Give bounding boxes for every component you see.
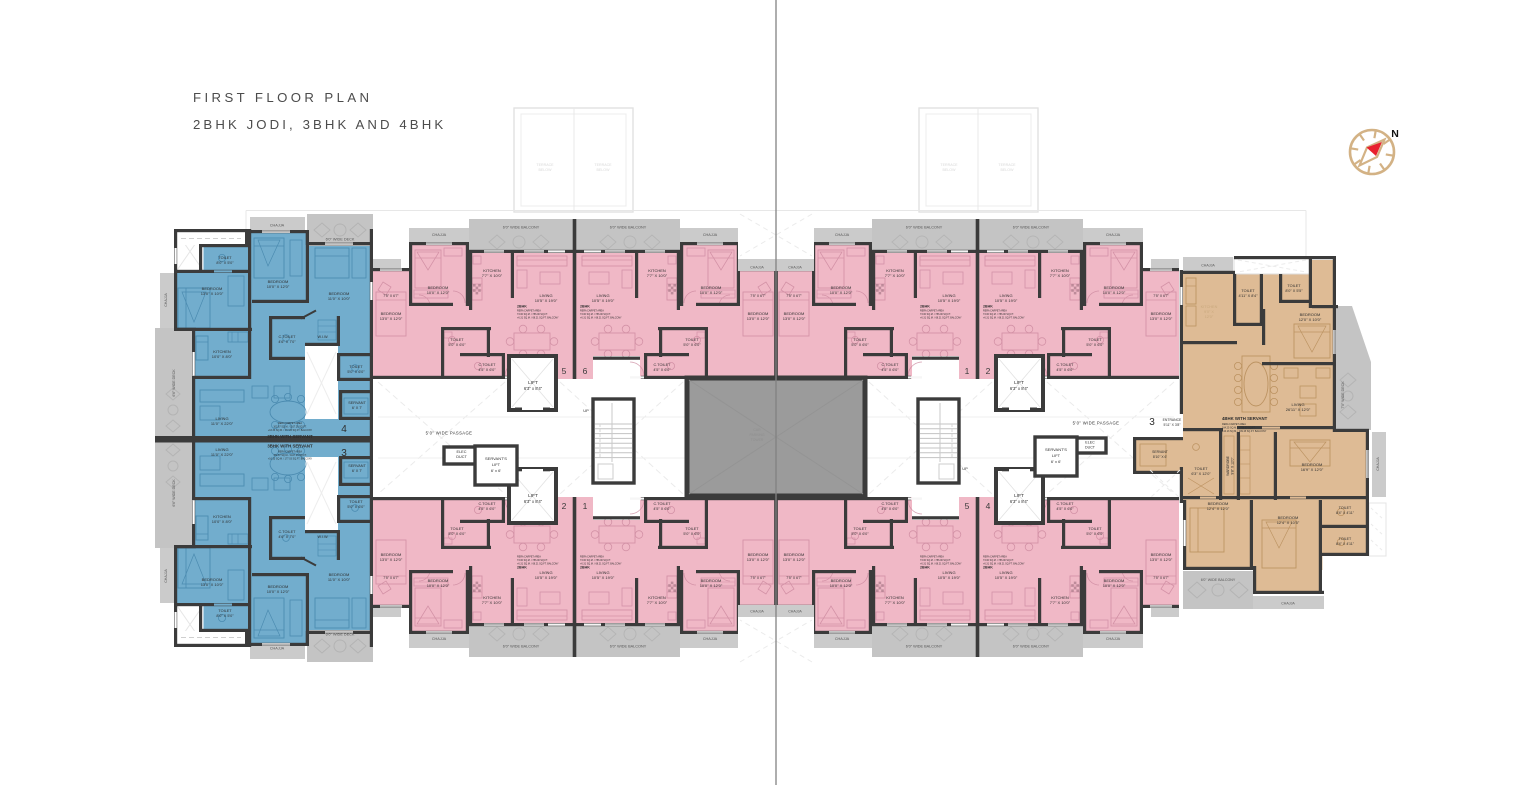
svg-text:6'0" WIDE BALCONY: 6'0" WIDE BALCONY xyxy=(1201,578,1236,582)
svg-text:10'5" X 19'0": 10'5" X 19'0" xyxy=(535,298,558,303)
svg-text:3BHK WITH SERVANT: 3BHK WITH SERVANT xyxy=(267,444,313,449)
svg-text:TERRACE: TERRACE xyxy=(594,163,612,167)
svg-text:C.TOILET: C.TOILET xyxy=(278,335,296,339)
svg-text:4'5" X 6'0": 4'5" X 6'0" xyxy=(881,507,899,511)
svg-text:6'0" WIDE BALCONY: 6'0" WIDE BALCONY xyxy=(906,226,943,230)
svg-text:TOILET: TOILET xyxy=(349,365,363,369)
svg-text:13'0" X 10'0": 13'0" X 10'0" xyxy=(201,291,224,296)
svg-text:10'0" X 12'0": 10'0" X 12'0" xyxy=(267,589,290,594)
svg-text:4BHK WITH SERVANT: 4BHK WITH SERVANT xyxy=(1222,416,1268,421)
svg-text:TOILET: TOILET xyxy=(1194,467,1208,471)
svg-text:TERRACE: TERRACE xyxy=(998,163,1016,167)
svg-text:CHAJJA: CHAJJA xyxy=(835,637,850,641)
svg-text:TOILET: TOILET xyxy=(450,527,464,531)
svg-text:10'5" X 19'0": 10'5" X 19'0" xyxy=(938,298,961,303)
svg-text:13'0" X 12'0": 13'0" X 12'0" xyxy=(783,557,806,562)
svg-text:6'0" WIDE BALCONY: 6'0" WIDE BALCONY xyxy=(610,645,647,649)
svg-text:TOILET: TOILET xyxy=(218,256,232,260)
svg-text:13'0" X 10'0": 13'0" X 10'0" xyxy=(201,582,224,587)
svg-text:8'4" X 4'11": 8'4" X 4'11" xyxy=(1336,542,1355,546)
svg-text:7'5" X 6'7": 7'5" X 6'7" xyxy=(750,294,766,298)
svg-text:+16.33 SQ.M. / 177.03 SQ.FT. B: +16.33 SQ.M. / 177.03 SQ.FT. BALCONY xyxy=(268,457,313,460)
svg-text:6' x 6': 6' x 6' xyxy=(491,468,501,473)
svg-text:2BHK: 2BHK xyxy=(920,566,930,570)
svg-text:FIRST FLOOR PLAN: FIRST FLOOR PLAN xyxy=(193,90,372,105)
svg-text:ELEC: ELEC xyxy=(1085,441,1095,445)
svg-text:1: 1 xyxy=(583,501,588,511)
svg-text:LIFT: LIFT xyxy=(492,462,501,467)
svg-text:6'0" WIDE DECK: 6'0" WIDE DECK xyxy=(326,238,355,242)
svg-text:BELOW: BELOW xyxy=(597,168,611,172)
svg-text:4'5" X 6'0": 4'5" X 6'0" xyxy=(478,368,496,372)
svg-text:6'3" x 8'4": 6'3" x 8'4" xyxy=(1010,499,1029,504)
svg-text:CHAJJA: CHAJJA xyxy=(703,637,718,641)
svg-text:10'0" X 12'0": 10'0" X 12'0" xyxy=(700,583,723,588)
svg-text:13'0" X 12'0": 13'0" X 12'0" xyxy=(380,316,403,321)
svg-text:5: 5 xyxy=(562,366,567,376)
svg-text:TOILET: TOILET xyxy=(1287,284,1301,288)
svg-text:DUCT: DUCT xyxy=(1085,446,1096,450)
svg-text:12'0": 12'0" xyxy=(1205,315,1214,319)
svg-text:13'0" X 12'0": 13'0" X 12'0" xyxy=(747,557,770,562)
svg-text:6'3" x 8'4": 6'3" x 8'4" xyxy=(524,386,543,391)
svg-text:SERVANT: SERVANT xyxy=(348,401,366,405)
svg-text:CHAJJA: CHAJJA xyxy=(1376,457,1380,471)
svg-text:CHAJJA: CHAJJA xyxy=(788,266,802,270)
svg-text:7'7" X 10'0": 7'7" X 10'0" xyxy=(885,273,906,278)
svg-text:5'0" X 6'0": 5'0" X 6'0" xyxy=(851,532,869,536)
svg-text:SERVANT'S: SERVANT'S xyxy=(1045,447,1067,452)
svg-text:C.TOILET: C.TOILET xyxy=(881,363,899,367)
svg-text:13'0" X 12'0": 13'0" X 12'0" xyxy=(783,316,806,321)
svg-text:8'10" X 6': 8'10" X 6' xyxy=(1153,455,1168,459)
svg-text:13'0" X 12'0": 13'0" X 12'0" xyxy=(1150,316,1173,321)
svg-text:SERVANT: SERVANT xyxy=(348,464,366,468)
svg-text:10'0" X 12'0": 10'0" X 12'0" xyxy=(700,290,723,295)
svg-text:11'0" X 22'0": 11'0" X 22'0" xyxy=(211,452,234,457)
svg-text:7'7" X 10'0": 7'7" X 10'0" xyxy=(482,600,503,605)
svg-text:9'8" X 12'0": 9'8" X 12'0" xyxy=(1231,457,1235,475)
svg-text:26'11" X 12'0": 26'11" X 12'0" xyxy=(1286,407,1311,412)
svg-text:16'9" X 12'0": 16'9" X 12'0" xyxy=(1301,467,1324,472)
svg-text:2: 2 xyxy=(562,501,567,511)
svg-text:7'5" X 6'7": 7'5" X 6'7" xyxy=(383,294,399,298)
svg-text:CHAJJA: CHAJJA xyxy=(750,610,764,614)
svg-text:10'5" X 19'0": 10'5" X 19'0" xyxy=(995,298,1018,303)
svg-text:CHAJJA: CHAJJA xyxy=(1106,637,1121,641)
svg-text:TOILET: TOILET xyxy=(1339,537,1352,541)
svg-text:BELOW: BELOW xyxy=(539,168,553,172)
svg-text:CHAJJA: CHAJJA xyxy=(1201,264,1215,268)
svg-text:7'0" WIDE DECK: 7'0" WIDE DECK xyxy=(1341,381,1345,409)
svg-text:4'6" X 7'0": 4'6" X 7'0" xyxy=(278,535,296,539)
svg-text:10'5" X 19'0": 10'5" X 19'0" xyxy=(592,575,615,580)
svg-text:5'0" WIDE PASSAGE: 5'0" WIDE PASSAGE xyxy=(1073,421,1120,426)
svg-text:W.I.W.: W.I.W. xyxy=(318,535,329,539)
svg-text:TOILET: TOILET xyxy=(853,527,867,531)
svg-text:7'7" X 10'0": 7'7" X 10'0" xyxy=(1050,273,1071,278)
svg-text:6'0" WIDE BALCONY: 6'0" WIDE BALCONY xyxy=(503,645,540,649)
svg-text:10'5" X 19'0": 10'5" X 19'0" xyxy=(592,298,615,303)
svg-text:9'0" X: 9'0" X xyxy=(1204,310,1214,314)
svg-text:7'5" X 6'7": 7'5" X 6'7" xyxy=(786,294,802,298)
svg-text:TERRACE: TERRACE xyxy=(940,163,958,167)
svg-text:CAR: CAR xyxy=(753,428,761,432)
svg-text:CHAJJA: CHAJJA xyxy=(835,233,850,237)
svg-text:6'6" WIDE DECK: 6'6" WIDE DECK xyxy=(172,369,176,397)
svg-text:5'0" WIDE PASSAGE: 5'0" WIDE PASSAGE xyxy=(426,431,473,436)
svg-text:10'0" X 8'0": 10'0" X 8'0" xyxy=(212,519,233,524)
svg-text:7'7" X 10'0": 7'7" X 10'0" xyxy=(482,273,503,278)
svg-text:DUCT: DUCT xyxy=(456,455,467,459)
svg-text:CHAJJA: CHAJJA xyxy=(1106,233,1121,237)
svg-text:TOILET: TOILET xyxy=(685,338,699,342)
svg-text:6'0" WIDE BALCONY: 6'0" WIDE BALCONY xyxy=(1013,226,1050,230)
svg-text:6'0" WIDE DECK: 6'0" WIDE DECK xyxy=(326,633,355,637)
svg-text:8'4" X 4'11": 8'4" X 4'11" xyxy=(1336,511,1355,515)
svg-text:2BHK: 2BHK xyxy=(580,566,590,570)
svg-text:CHAJJA: CHAJJA xyxy=(164,569,168,583)
svg-text:10'0" X 8'0": 10'0" X 8'0" xyxy=(212,354,233,359)
svg-text:W.I.W.: W.I.W. xyxy=(318,335,329,339)
svg-text:ENTRANCE: ENTRANCE xyxy=(1163,418,1182,422)
svg-text:6' X 7': 6' X 7' xyxy=(352,406,363,410)
svg-text:7'7" X 10'0": 7'7" X 10'0" xyxy=(647,273,668,278)
svg-text:10'0" X 12'0": 10'0" X 12'0" xyxy=(830,583,853,588)
svg-text:6'3" x 8'4": 6'3" x 8'4" xyxy=(1010,386,1029,391)
svg-text:6'0" WIDE BALCONY: 6'0" WIDE BALCONY xyxy=(906,645,943,649)
svg-text:12'4" X 12'0": 12'4" X 12'0" xyxy=(1207,506,1230,511)
svg-text:CHAJJA: CHAJJA xyxy=(1281,602,1295,606)
svg-text:5: 5 xyxy=(965,501,970,511)
svg-text:5'0" X 6'0": 5'0" X 6'0" xyxy=(851,343,869,347)
svg-text:+10.13 SQ.M. / 109.15 SQ.FT. B: +10.13 SQ.M. / 109.15 SQ.FT. BALCONY xyxy=(1222,430,1267,433)
svg-text:13'0" X 12'0": 13'0" X 12'0" xyxy=(747,316,770,321)
svg-text:10'0" X 12'0": 10'0" X 12'0" xyxy=(1103,583,1126,588)
svg-text:TERRACE: TERRACE xyxy=(536,163,554,167)
svg-text:6'0" WIDE BALCONY: 6'0" WIDE BALCONY xyxy=(1013,645,1050,649)
svg-text:TOILET: TOILET xyxy=(1339,506,1352,510)
svg-text:TOILET: TOILET xyxy=(685,527,699,531)
svg-text:1: 1 xyxy=(965,366,970,376)
svg-text:C.TOILET: C.TOILET xyxy=(653,502,671,506)
svg-text:5'0" X 6'0": 5'0" X 6'0" xyxy=(347,370,365,374)
svg-text:13'0" X 12'0": 13'0" X 12'0" xyxy=(380,557,403,562)
svg-text:11'0" X 22'0": 11'0" X 22'0" xyxy=(211,421,234,426)
svg-text:10'0" X 12'0": 10'0" X 12'0" xyxy=(267,284,290,289)
svg-text:4'5" X 6'0": 4'5" X 6'0" xyxy=(478,507,496,511)
svg-text:7'5" X 6'7": 7'5" X 6'7" xyxy=(1153,576,1169,580)
svg-text:4'5" X 6'0": 4'5" X 6'0" xyxy=(1056,368,1074,372)
svg-text:LIFT: LIFT xyxy=(1052,453,1061,458)
svg-text:4'5" X 6'0": 4'5" X 6'0" xyxy=(881,368,899,372)
svg-text:7'5" X 6'7": 7'5" X 6'7" xyxy=(383,576,399,580)
svg-text:+6.31 SQ.M. / 68.21 SQ.FT. BAL: +6.31 SQ.M. / 68.21 SQ.FT. BALCONY xyxy=(580,317,622,320)
svg-text:TOILET: TOILET xyxy=(349,500,363,504)
svg-text:UP: UP xyxy=(962,466,968,471)
svg-text:6'3" X 12'0": 6'3" X 12'0" xyxy=(1191,472,1211,476)
svg-text:7'7" X 10'0": 7'7" X 10'0" xyxy=(1050,600,1071,605)
svg-text:4'5" X 6'0": 4'5" X 6'0" xyxy=(653,368,671,372)
svg-text:4'11" X 8'4": 4'11" X 8'4" xyxy=(1238,294,1258,298)
svg-text:TOILET: TOILET xyxy=(1088,338,1102,342)
svg-text:CHAJJA: CHAJJA xyxy=(164,293,168,307)
svg-text:6'0" WIDE BALCONY: 6'0" WIDE BALCONY xyxy=(610,226,647,230)
svg-text:3: 3 xyxy=(1149,417,1155,428)
svg-text:10'0" X 12'0": 10'0" X 12'0" xyxy=(427,583,450,588)
svg-text:3: 3 xyxy=(341,448,347,459)
svg-text:C.TOILET: C.TOILET xyxy=(881,502,899,506)
svg-text:2BHK: 2BHK xyxy=(983,566,993,570)
svg-text:2BHK: 2BHK xyxy=(580,305,590,309)
svg-text:8'0" X 5'0": 8'0" X 5'0" xyxy=(216,261,234,265)
svg-text:7'7" X 10'0": 7'7" X 10'0" xyxy=(885,600,906,605)
svg-text:2BHK: 2BHK xyxy=(920,305,930,309)
svg-text:10'0" X 12'0": 10'0" X 12'0" xyxy=(427,290,450,295)
svg-text:C.TOILET: C.TOILET xyxy=(478,502,496,506)
svg-text:6'3" x 8'4": 6'3" x 8'4" xyxy=(524,499,543,504)
svg-text:5'0" X 6'0": 5'0" X 6'0" xyxy=(448,343,466,347)
svg-text:7'5" X 6'7": 7'5" X 6'7" xyxy=(750,576,766,580)
svg-text:SERVANT: SERVANT xyxy=(1152,450,1168,454)
svg-text:11'0" X 10'0": 11'0" X 10'0" xyxy=(328,296,351,301)
svg-text:5'11" X 3'8": 5'11" X 3'8" xyxy=(1163,423,1181,427)
svg-text:8'0" X 5'0": 8'0" X 5'0" xyxy=(216,614,234,618)
svg-text:3BHK WITH SERVANT: 3BHK WITH SERVANT xyxy=(267,434,313,439)
svg-text:KITCHEN: KITCHEN xyxy=(1201,305,1218,309)
svg-text:WARDROBE: WARDROBE xyxy=(1226,455,1230,476)
svg-text:11'0" X 10'0": 11'0" X 10'0" xyxy=(328,577,351,582)
svg-text:12'0" X 10'0": 12'0" X 10'0" xyxy=(1299,317,1322,322)
svg-text:C.TOILET: C.TOILET xyxy=(653,363,671,367)
svg-text:4'6" X 7'0": 4'6" X 7'0" xyxy=(278,340,296,344)
svg-text:10'5" X 19'0": 10'5" X 19'0" xyxy=(535,575,558,580)
svg-text:+6.31 SQ.M. / 68.21 SQ.FT. BAL: +6.31 SQ.M. / 68.21 SQ.FT. BALCONY xyxy=(517,317,559,320)
svg-text:4: 4 xyxy=(986,501,991,511)
svg-text:ELEC: ELEC xyxy=(457,450,467,454)
svg-text:CHAJJA: CHAJJA xyxy=(432,637,447,641)
svg-text:7'5" X 6'7": 7'5" X 6'7" xyxy=(786,576,802,580)
svg-text:6'0" WIDE BALCONY: 6'0" WIDE BALCONY xyxy=(503,226,540,230)
svg-text:4: 4 xyxy=(341,424,347,435)
svg-text:2BHK: 2BHK xyxy=(517,305,527,309)
svg-text:N: N xyxy=(1391,128,1399,140)
svg-text:6'6" WIDE DECK: 6'6" WIDE DECK xyxy=(172,479,176,507)
svg-text:7'7" X 10'0": 7'7" X 10'0" xyxy=(647,600,668,605)
svg-text:10'0" X 12'0": 10'0" X 12'0" xyxy=(1103,290,1126,295)
svg-text:6: 6 xyxy=(583,366,588,376)
svg-text:+6.31 SQ.M. / 68.21 SQ.FT. BAL: +6.31 SQ.M. / 68.21 SQ.FT. BALCONY xyxy=(920,317,962,320)
svg-text:6' x 6': 6' x 6' xyxy=(1051,459,1061,464)
svg-text:5'0" X 6'0": 5'0" X 6'0" xyxy=(448,532,466,536)
svg-text:SERVANT'S: SERVANT'S xyxy=(485,456,507,461)
svg-text:13'0" X 12'0": 13'0" X 12'0" xyxy=(1150,557,1173,562)
svg-text:TOILET: TOILET xyxy=(218,609,232,613)
svg-text:+16.33 SQ.M. / 177.03 SQ.FT. B: +16.33 SQ.M. / 177.03 SQ.FT. BALCONY xyxy=(268,429,313,432)
svg-text:CHAJJA: CHAJJA xyxy=(703,233,718,237)
svg-text:12'4" X 10'5": 12'4" X 10'5" xyxy=(1277,520,1300,525)
svg-text:UP: UP xyxy=(583,408,589,413)
svg-text:4'5" X 6'0": 4'5" X 6'0" xyxy=(1056,507,1074,511)
svg-text:TOILET: TOILET xyxy=(853,338,867,342)
svg-text:+6.31 SQ.M. / 68.21 SQ.FT. BAL: +6.31 SQ.M. / 68.21 SQ.FT. BALCONY xyxy=(983,317,1025,320)
svg-text:5'0" X 6'0": 5'0" X 6'0" xyxy=(1086,532,1104,536)
svg-text:10'5" X 19'0": 10'5" X 19'0" xyxy=(995,575,1018,580)
svg-text:5'0" X 6'0": 5'0" X 6'0" xyxy=(1086,343,1104,347)
svg-text:BELOW: BELOW xyxy=(1001,168,1015,172)
svg-text:CHAJJA: CHAJJA xyxy=(432,233,447,237)
svg-text:C.TOILET: C.TOILET xyxy=(1056,502,1074,506)
svg-text:10'5" X 19'0": 10'5" X 19'0" xyxy=(938,575,961,580)
svg-text:2: 2 xyxy=(986,366,991,376)
svg-text:7'5" X 6'7": 7'5" X 6'7" xyxy=(1153,294,1169,298)
svg-text:CHAJJA: CHAJJA xyxy=(750,266,764,270)
svg-text:TOILET: TOILET xyxy=(1088,527,1102,531)
svg-text:TOWER: TOWER xyxy=(751,438,764,442)
svg-text:CHAJJA: CHAJJA xyxy=(788,610,802,614)
svg-text:2BHK JODI, 3BHK AND 4BHK: 2BHK JODI, 3BHK AND 4BHK xyxy=(193,117,446,132)
svg-text:8'0" X 5'5": 8'0" X 5'5" xyxy=(1285,289,1303,293)
svg-text:5'0" X 6'0": 5'0" X 6'0" xyxy=(683,532,701,536)
svg-text:PARKING: PARKING xyxy=(749,433,764,437)
svg-text:TOILET: TOILET xyxy=(1241,289,1255,293)
svg-text:6' X 7': 6' X 7' xyxy=(352,469,363,473)
svg-text:C.TOILET: C.TOILET xyxy=(278,530,296,534)
svg-text:2BHK: 2BHK xyxy=(983,305,993,309)
svg-text:CHAJJA: CHAJJA xyxy=(270,224,285,228)
svg-text:C.TOILET: C.TOILET xyxy=(1056,363,1074,367)
svg-text:C.TOILET: C.TOILET xyxy=(478,363,496,367)
svg-text:10'0" X 12'0": 10'0" X 12'0" xyxy=(830,290,853,295)
svg-text:BELOW: BELOW xyxy=(943,168,957,172)
svg-text:2BHK: 2BHK xyxy=(517,566,527,570)
svg-text:TOILET: TOILET xyxy=(450,338,464,342)
svg-text:5'0" X 6'0": 5'0" X 6'0" xyxy=(683,343,701,347)
svg-text:CHAJJA: CHAJJA xyxy=(270,647,285,651)
svg-text:5'0" X 6'0": 5'0" X 6'0" xyxy=(347,505,365,509)
svg-text:4'5" X 6'0": 4'5" X 6'0" xyxy=(653,507,671,511)
